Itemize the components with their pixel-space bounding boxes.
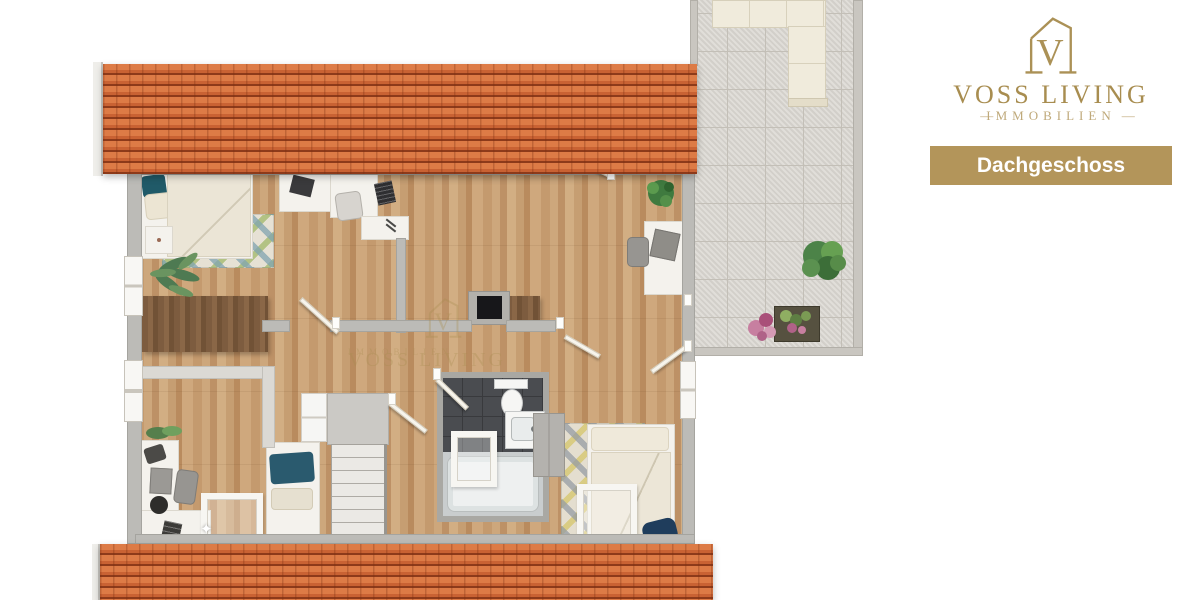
office-kneewall-right: [262, 366, 275, 448]
terrace-wall-bottom: [690, 347, 863, 356]
watermark: V VOSS LIVING IMMOBILIEN: [348, 296, 538, 347]
roof-top: [103, 64, 697, 174]
brand-house-icon: V: [1018, 14, 1082, 80]
window-left-1: [124, 256, 143, 316]
toilet-tank: [494, 379, 528, 389]
door-terrace-jamb-1: [684, 294, 692, 306]
wall-right: [682, 172, 695, 544]
wall-bottom: [135, 534, 695, 544]
office-laptop: [149, 467, 172, 494]
office-chair-right: [627, 237, 649, 267]
floor-banner: Dachgeschoss: [930, 146, 1172, 185]
roof-bottom: [100, 544, 713, 600]
nightstand-knob: [157, 238, 161, 242]
floorplan-page: ✦ V: [0, 0, 1200, 600]
brand-monogram: V: [1036, 32, 1063, 74]
terrace-sofa-armrest: [788, 98, 828, 107]
terrace-sofa: [712, 0, 826, 28]
watermark-house-icon: V: [421, 296, 465, 342]
door-bath-hall-jamb: [388, 393, 396, 405]
hall-cabinet: [301, 393, 327, 442]
door-terrace-jamb-2: [684, 340, 692, 352]
office-chair-2: [173, 469, 200, 506]
brand-tagline: — IMMOBILIEN —: [930, 108, 1172, 124]
door-bedroom2-jamb: [556, 317, 564, 329]
plant-icon: [641, 174, 681, 212]
wardrobe: [533, 413, 565, 477]
staircase: [331, 444, 387, 544]
window-left-2: [124, 360, 143, 422]
terrace-wall-left: [690, 0, 698, 66]
office-chair: [334, 190, 364, 221]
terrace-plant-icon: [794, 230, 852, 288]
stair-rail: [384, 444, 387, 544]
bed2-pillows: [591, 427, 669, 451]
terrace-sofa-chaise: [788, 26, 826, 106]
brand-tagline-dash-left: —: [980, 108, 998, 124]
sofa-cushion-navy: [269, 452, 315, 485]
stair-landing: [327, 393, 389, 445]
brand-tagline-text: IMMOBILIEN: [986, 108, 1115, 123]
window-right: [680, 361, 696, 419]
watermark-monogram: V: [434, 309, 452, 336]
brand-name: VOSS LIVING: [930, 80, 1172, 110]
roof-gutter-top: [93, 62, 103, 176]
office-stool: [150, 496, 168, 514]
wall-interior-horiz-1: [262, 320, 290, 332]
roof-gutter-bottom: [92, 544, 100, 600]
floor-banner-label: Dachgeschoss: [977, 154, 1125, 177]
terrace-wall-right: [853, 0, 863, 356]
door-hall-jamb: [332, 317, 340, 329]
wall-left: [127, 172, 142, 544]
bedroom-plant-icon: [143, 245, 213, 305]
bath-skylight: [451, 431, 497, 487]
office-kneewall-top: [140, 366, 275, 379]
planter-flowers-icon: [742, 302, 826, 348]
sofa-cushion: [271, 488, 313, 510]
brand-tagline-dash-right: —: [1122, 108, 1140, 124]
watermark-tagline: IMMOBILIEN: [348, 347, 453, 357]
